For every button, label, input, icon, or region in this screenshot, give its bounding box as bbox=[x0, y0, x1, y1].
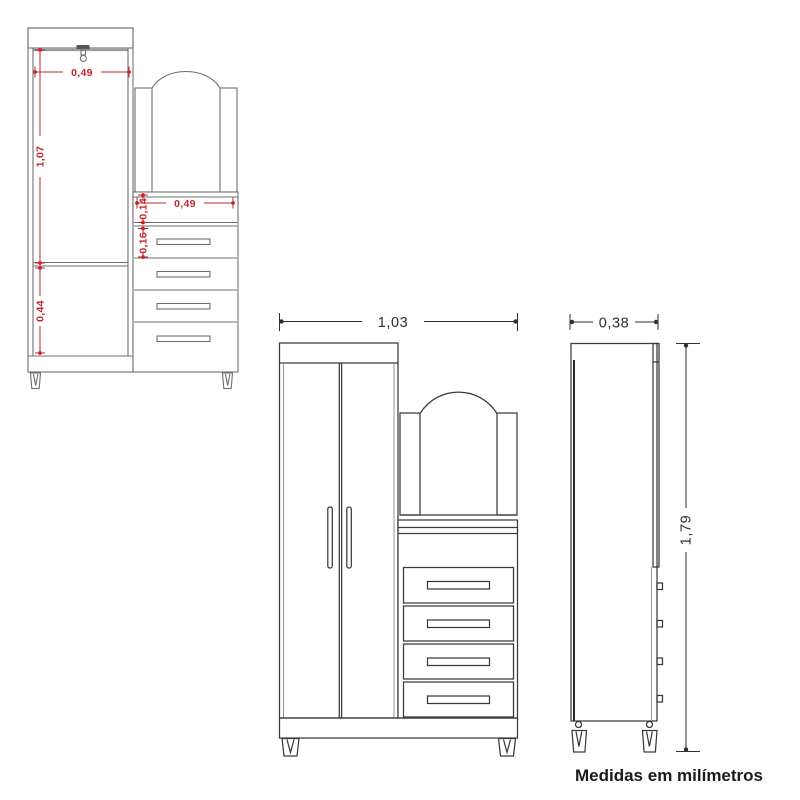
base-and-feet bbox=[280, 718, 518, 756]
cabinet-side-panel bbox=[571, 344, 663, 722]
drawer-unit-outline bbox=[398, 520, 518, 718]
drawer-handle-side bbox=[657, 696, 663, 703]
front-view: 1,03 bbox=[279, 313, 517, 756]
technical-drawing-canvas: 0,49 1,07 0,44 0,49 bbox=[0, 0, 800, 800]
dim-label: 0,14 bbox=[138, 198, 150, 220]
foot bbox=[223, 373, 233, 389]
drawer-stack bbox=[398, 520, 518, 718]
dim-label: 0,44 bbox=[35, 300, 47, 322]
foot bbox=[31, 373, 41, 389]
foot bbox=[643, 731, 658, 753]
mirror-arch bbox=[152, 72, 220, 89]
mirror-left-post bbox=[400, 413, 420, 515]
mirror bbox=[135, 72, 237, 193]
drawer-handle-side bbox=[657, 583, 663, 590]
mirror-right-post bbox=[497, 413, 517, 515]
mirror-arch bbox=[420, 392, 497, 413]
mirror-left-post bbox=[135, 88, 152, 192]
dimension-total-depth: 0,38 bbox=[570, 314, 658, 331]
foot bbox=[572, 731, 587, 753]
dim-label: 0,49 bbox=[174, 198, 196, 210]
foot-pin bbox=[576, 722, 582, 728]
feet bbox=[572, 722, 657, 753]
interior-front-view: 0,49 1,07 0,44 0,49 bbox=[28, 28, 238, 389]
dimension-total-height: 1,79 bbox=[676, 343, 700, 751]
dim-label: 1,79 bbox=[679, 515, 695, 546]
side-view: 0,38 1 bbox=[570, 314, 700, 752]
furniture-dimension-sheet: 0,49 1,07 0,44 0,49 bbox=[0, 0, 800, 800]
dim-label: 0,16 bbox=[138, 232, 150, 254]
mirror bbox=[400, 392, 517, 515]
dim-label: 0,49 bbox=[71, 67, 93, 79]
dim-label: 1,07 bbox=[35, 146, 47, 168]
foot-pin bbox=[647, 722, 653, 728]
dim-label: 1,03 bbox=[378, 315, 409, 331]
feet bbox=[31, 373, 233, 389]
mirror-right-post bbox=[220, 88, 237, 192]
dim-label: 0,38 bbox=[599, 315, 630, 331]
side-outline bbox=[571, 344, 657, 722]
wardrobe-doors-section bbox=[280, 343, 399, 718]
drawer-handle-side bbox=[657, 621, 663, 628]
drawer-handle-side bbox=[657, 658, 663, 665]
units-note: Medidas em milímetros bbox=[575, 766, 763, 785]
plinth bbox=[280, 718, 518, 738]
dimension-total-width: 1,03 bbox=[279, 313, 517, 331]
